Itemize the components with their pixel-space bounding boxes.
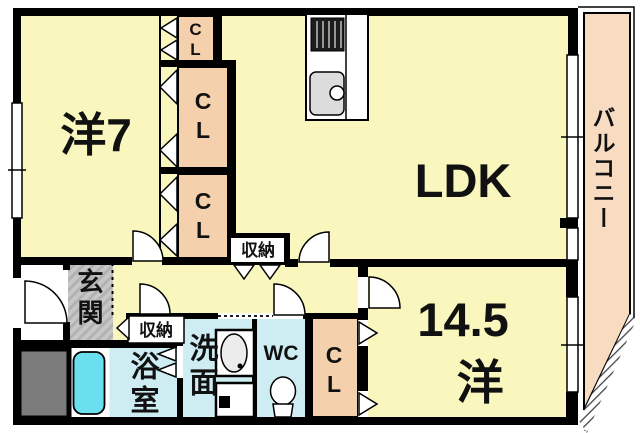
entry-door-opening	[12, 278, 22, 328]
bathtub-icon	[74, 352, 105, 414]
closet3-label: CL	[191, 188, 214, 246]
window-west	[12, 103, 22, 218]
closet1-label: CL	[187, 20, 204, 60]
closet2-label: CL	[191, 88, 214, 146]
room-label-wc: WC	[257, 343, 305, 364]
storage2-label: 収納	[130, 322, 182, 339]
storage1-label: 収納	[231, 242, 285, 259]
faucet-icon	[330, 86, 344, 100]
room-label-bathroom: 浴室	[127, 351, 156, 419]
closet4-label: CL	[322, 342, 345, 400]
toilet-icon	[271, 377, 296, 417]
floor-plan: { "plan": { "type": "apartment-floor-pla…	[0, 0, 640, 433]
room-label-entrance: 玄関	[76, 268, 102, 330]
ldk-name: LDK	[415, 154, 512, 207]
floor-plan-drawing	[0, 0, 640, 433]
room-label-balcony: バルコニー	[590, 106, 613, 231]
kitchen-unit	[306, 14, 368, 120]
room-label-western61: 洋 6.1	[392, 274, 542, 433]
western61-name: 洋	[457, 356, 504, 409]
room-label-washroom: 洗面	[186, 333, 215, 401]
washing-machine-icon	[216, 383, 254, 417]
pipe-shaft	[19, 349, 69, 418]
window-ldk-lower	[567, 228, 578, 260]
washbasin-icon	[216, 330, 254, 376]
room-label-western7: 洋7	[42, 112, 150, 158]
stove-icon	[311, 18, 344, 51]
